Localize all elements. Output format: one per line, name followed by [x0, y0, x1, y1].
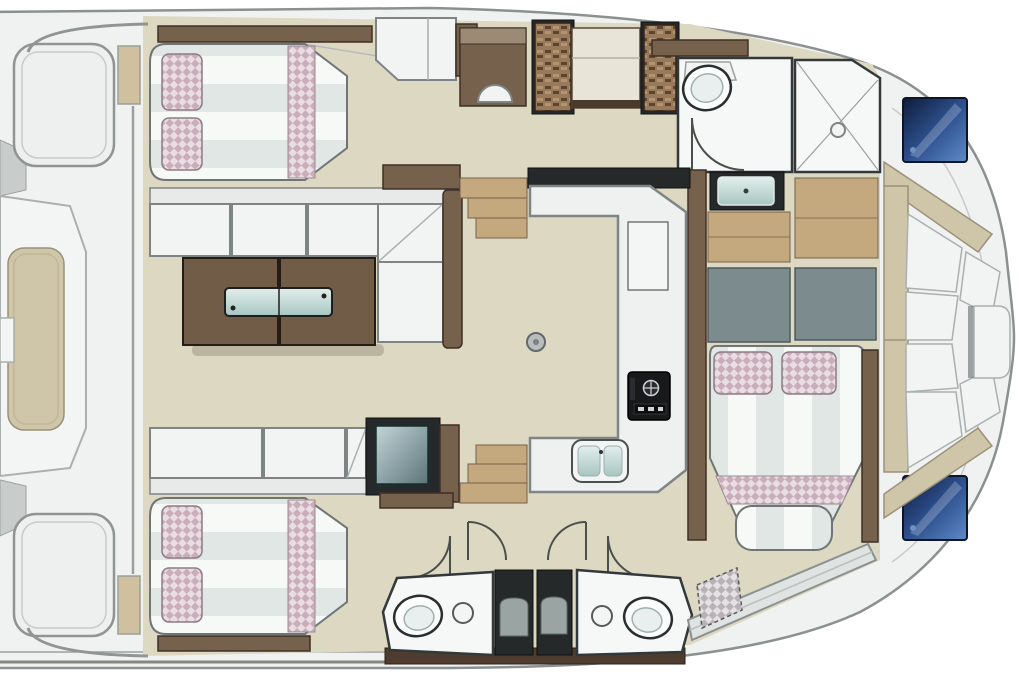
bed-runner [288, 500, 315, 632]
rattan-locker-2 [644, 25, 676, 111]
seatback-spine [884, 186, 908, 472]
heads-bottom [383, 570, 692, 664]
locker-strip-top [118, 46, 140, 104]
rattan-locker-1 [535, 23, 571, 111]
sofa-cushion [150, 428, 262, 478]
lounge-cushion-2 [906, 292, 958, 340]
glass-hinge-2 [322, 294, 327, 299]
foot-shelf [158, 636, 310, 651]
stove-knobs [630, 378, 635, 400]
pillow [162, 568, 202, 622]
counter-hatch [628, 222, 668, 290]
center-seat [974, 306, 1010, 378]
step [468, 198, 527, 218]
control-tick-2 [648, 407, 654, 411]
hatch-dot-top [910, 147, 916, 153]
step [476, 445, 527, 464]
double-sink [572, 440, 628, 482]
media-side-panel [440, 425, 459, 502]
step [476, 218, 527, 238]
pillow [162, 54, 202, 110]
transom-notch [0, 318, 14, 362]
stall-panel-left [500, 598, 528, 636]
locker-strip-bottom [118, 576, 140, 634]
pillow [162, 118, 202, 170]
control-tick-1 [638, 407, 644, 411]
sofa-cushion-side [378, 262, 443, 342]
hatch-dot-bottom [910, 525, 916, 531]
pillow [714, 352, 772, 394]
sofa-backrest-top [150, 188, 445, 204]
yacht-floor-plan [0, 0, 1024, 680]
sofa-side-panel [443, 190, 462, 348]
step [460, 483, 527, 503]
sofa-cushion [308, 204, 378, 256]
cabin-wall-left [688, 170, 706, 540]
pillow [162, 506, 202, 558]
lounge-cushion-3 [906, 344, 958, 392]
vanity-faucet [744, 189, 749, 194]
sink-basin-left [578, 446, 600, 476]
sink-faucet [599, 450, 603, 454]
cabin-rail-right [862, 350, 878, 542]
wall-segment [383, 165, 460, 189]
gray-locker-1 [708, 268, 790, 342]
round-sink [592, 606, 612, 626]
bed-foot [736, 506, 832, 550]
shower-drain [831, 123, 845, 137]
glass-hinge-1 [231, 306, 236, 311]
step [468, 464, 527, 483]
platform-outline-top [14, 44, 114, 166]
headboard-shelf [158, 26, 372, 42]
stall-panel-right [541, 597, 567, 634]
gray-locker-2 [795, 268, 876, 340]
sofa-cushion [150, 204, 230, 256]
stove [628, 372, 670, 420]
pillow [782, 352, 836, 394]
desk-shelf [460, 28, 526, 44]
shelf-base [572, 100, 640, 108]
sofa-cushion [232, 204, 306, 256]
platform-outline-bottom [14, 514, 114, 636]
media-glass-front [376, 426, 428, 484]
round-sink [453, 603, 473, 623]
shelf-unit [572, 28, 640, 108]
sofa-backrest-bottom [150, 478, 368, 494]
step [460, 178, 527, 198]
head-top-sill [652, 40, 748, 56]
sink-basin-right [604, 446, 622, 476]
floor-drain-center [533, 339, 539, 345]
bed-runner [288, 46, 315, 178]
floor-plan-canvas [0, 0, 1024, 680]
bed-runner [716, 476, 854, 504]
entry-seat [376, 18, 456, 80]
control-tick-3 [658, 407, 663, 411]
sofa-cushion [264, 428, 345, 478]
sunpad-panel [8, 248, 64, 430]
media-base [380, 493, 453, 508]
